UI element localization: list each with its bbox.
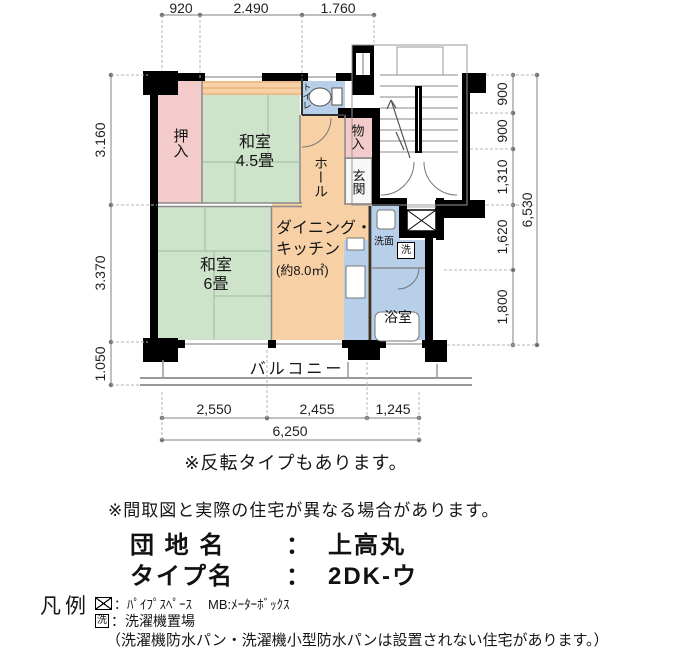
room-bath-area: [372, 268, 425, 340]
room-label-toilet: トイレ: [301, 83, 314, 110]
dim-bottom-3: 1,245: [375, 401, 410, 417]
room-label-genkan: 玄関: [349, 169, 368, 195]
dim-left-1: 3.160: [92, 122, 108, 157]
laundry-space-box: 洗: [397, 242, 415, 259]
dim-right-5: 1,800: [494, 289, 510, 324]
room-label-dk-2: キッチン: [276, 239, 372, 260]
room-label-washitsu45: 和室: [236, 133, 274, 152]
legend-row-laundry: 洗 ：洗濯機置場: [95, 611, 195, 631]
wall-stair-left: [352, 45, 374, 95]
estate-name-line: 団 地 名 ： 上高丸: [130, 525, 406, 560]
room-label-oshiire: 押入: [170, 128, 191, 158]
dim-top-1: 920: [169, 0, 192, 16]
legend-title: 凡例: [40, 590, 90, 620]
wall-column: [348, 340, 380, 360]
stair-divider: [415, 86, 422, 153]
dim-bottom-1: 2,550: [196, 401, 231, 417]
dim-top-3: 1.760: [320, 0, 355, 16]
room-label-washitsu45-size: 4.5畳: [236, 152, 274, 171]
stair-treads: [380, 75, 458, 152]
type-name-label: タイプ名: [130, 556, 278, 591]
room-label-balcony: バルコニー: [250, 355, 345, 379]
wall-column: [435, 200, 485, 218]
room-label-washitsu6: 和室: [200, 256, 232, 275]
laundry-legend-icon: 洗: [95, 614, 109, 628]
note-reverse-type: ※反転タイプもあります。: [184, 449, 407, 475]
type-name-colon: ：: [286, 556, 312, 591]
room-label-dk-3: (約8.0㎡): [276, 260, 372, 281]
dim-left-2: 3.370: [92, 255, 108, 290]
floorplan-page: 920 2.490 1.760 3.160 3.370 1.050 900 90…: [0, 0, 700, 650]
wall: [150, 73, 352, 81]
room-label-washitsu6-size: 6畳: [200, 275, 232, 294]
dim-right-1: 900: [494, 82, 510, 105]
dim-right-3: 1,310: [494, 159, 510, 194]
room-label-senmen: 洗面: [374, 233, 394, 248]
room-label-monoire: 物入: [348, 124, 367, 150]
dim-right-total: 6,530: [519, 192, 535, 227]
dim-bottom-2: 2,455: [299, 401, 334, 417]
dim-top-2: 2.490: [233, 0, 268, 16]
type-name-value: 2DK-ウ: [328, 556, 418, 591]
legend-laundry-note: （洗濯機防水パン・洗濯機小型防水パンは設置されない住宅があります。）: [106, 629, 609, 650]
pipe-space-legend-icon: [95, 597, 112, 610]
wall-column: [143, 71, 178, 95]
legend-meter-box-label: MB:ﾒｰﾀｰﾎﾞｯｸｽ: [208, 594, 290, 613]
wall: [462, 73, 470, 203]
washitsu45-top-board: [202, 81, 302, 95]
wall: [150, 73, 158, 353]
dim-bottom-total: 6,250: [272, 423, 307, 439]
estate-name-label: 団 地 名: [130, 525, 278, 560]
dim-right-4: 1,620: [494, 219, 510, 254]
pipe-space-icon: [407, 210, 436, 231]
estate-name-value: 上高丸: [328, 525, 406, 560]
note-disclaimer: ※間取図と実際の住宅が異なる場合があります。: [108, 496, 500, 521]
wall: [425, 232, 433, 348]
wall: [372, 108, 380, 206]
stair-up-arrow: [387, 100, 410, 158]
room-label-hall: ホール: [311, 156, 331, 198]
wall: [150, 340, 447, 348]
room-label-bath: 浴室: [384, 307, 412, 327]
room-label-dk-1: ダイニング・: [276, 218, 372, 239]
estate-name-colon: ：: [286, 525, 312, 560]
wall: [338, 108, 380, 118]
dim-left-3: 1.050: [92, 346, 108, 381]
legend-laundry-label: ：洗濯機置場: [111, 611, 195, 631]
dim-right-2: 900: [494, 119, 510, 142]
type-name-line: タイプ名 ： 2DK-ウ: [130, 556, 418, 591]
